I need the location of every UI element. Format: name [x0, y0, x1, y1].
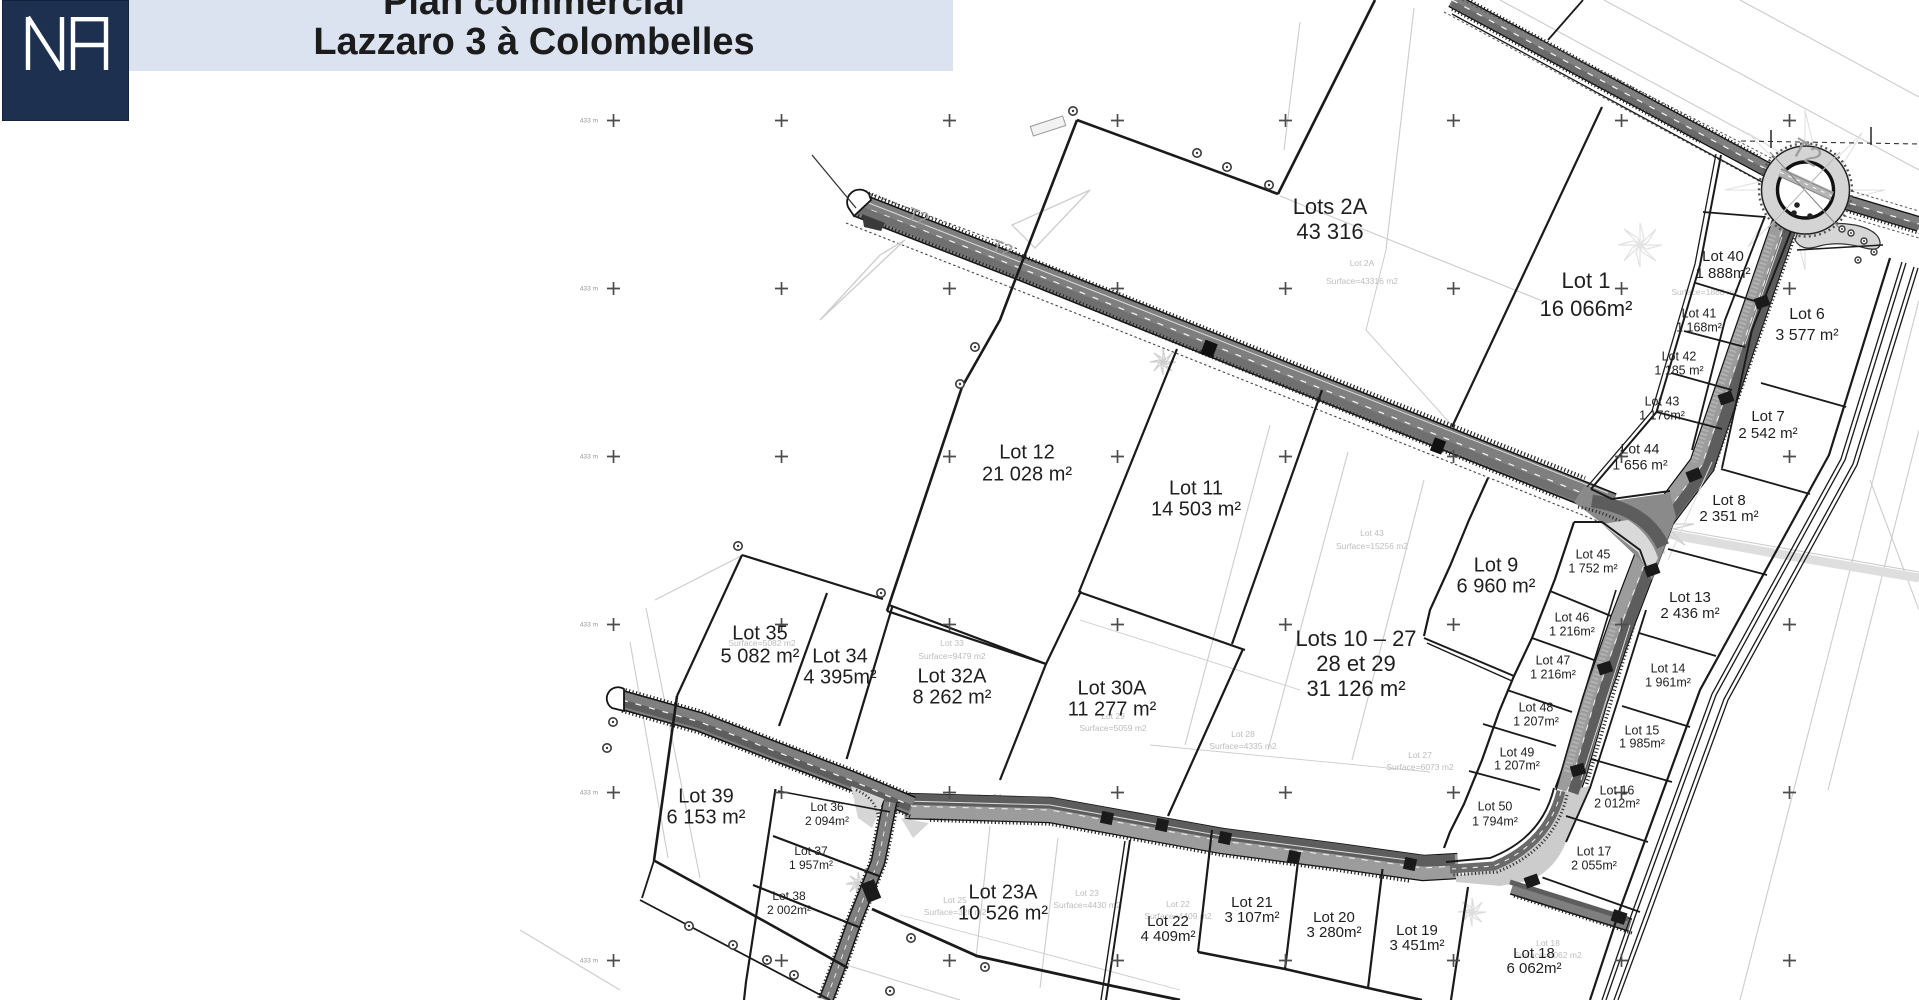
svg-text:Lot 2A: Lot 2A: [1350, 258, 1375, 268]
svg-text:1 216m²: 1 216m²: [1530, 667, 1576, 681]
svg-text:43 316: 43 316: [1296, 219, 1363, 244]
svg-text:1 985m²: 1 985m²: [1619, 736, 1665, 750]
svg-text:2 436 m²: 2 436 m²: [1660, 605, 1719, 622]
svg-text:21 028 m²: 21 028 m²: [982, 463, 1072, 485]
svg-text:433 m: 433 m: [580, 118, 598, 125]
svg-text:Lot 40: Lot 40: [1702, 248, 1744, 265]
svg-text:4 395m²: 4 395m²: [803, 666, 877, 688]
svg-text:Surface=5059 m2: Surface=5059 m2: [1079, 723, 1147, 733]
svg-text:6 960 m²: 6 960 m²: [1457, 575, 1536, 597]
svg-text:1 961m²: 1 961m²: [1645, 675, 1691, 689]
svg-text:2 094m²: 2 094m²: [805, 814, 849, 828]
svg-text:Lot 7: Lot 7: [1751, 408, 1784, 425]
svg-text:11 277 m²: 11 277 m²: [1068, 698, 1157, 720]
svg-text:14 503 m²: 14 503 m²: [1151, 498, 1241, 520]
svg-text:Lot 49: Lot 49: [1500, 745, 1535, 759]
svg-text:2 055m²: 2 055m²: [1571, 858, 1617, 872]
svg-text:Lot 11: Lot 11: [1169, 477, 1223, 499]
svg-text:8 262 m²: 8 262 m²: [913, 686, 992, 708]
svg-text:Lot 33: Lot 33: [940, 638, 964, 648]
svg-text:10 526 m²: 10 526 m²: [958, 902, 1048, 924]
svg-text:Lot 35: Lot 35: [732, 622, 788, 644]
svg-text:Lot 15: Lot 15: [1625, 723, 1660, 737]
svg-text:2 542 m²: 2 542 m²: [1738, 425, 1797, 442]
svg-text:Surface=15256 m2: Surface=15256 m2: [1336, 541, 1408, 551]
svg-text:Lot 9: Lot 9: [1474, 554, 1518, 576]
svg-text:Lot 30A: Lot 30A: [1078, 677, 1148, 699]
svg-text:1 207m²: 1 207m²: [1494, 758, 1540, 772]
svg-text:1 888m²: 1 888m²: [1695, 265, 1750, 282]
svg-text:Surface=4430 m2: Surface=4430 m2: [1053, 900, 1121, 910]
svg-text:Lot 32A: Lot 32A: [918, 665, 988, 687]
svg-text:1 957m²: 1 957m²: [789, 858, 833, 872]
svg-text:Lot 39: Lot 39: [678, 785, 734, 807]
svg-text:Lot 16: Lot 16: [1600, 783, 1635, 797]
svg-text:16 066m²: 16 066m²: [1540, 296, 1633, 321]
svg-text:Surface=4335 m2: Surface=4335 m2: [1209, 741, 1277, 751]
svg-text:433 m: 433 m: [580, 790, 598, 797]
svg-text:1 752 m²: 1 752 m²: [1568, 561, 1617, 575]
svg-text:1 168m²: 1 168m²: [1676, 320, 1722, 334]
svg-text:2 351 m²: 2 351 m²: [1699, 508, 1758, 525]
svg-text:Lot 46: Lot 46: [1555, 610, 1590, 624]
svg-text:433 m: 433 m: [580, 286, 598, 293]
svg-text:Lot 12: Lot 12: [999, 441, 1055, 463]
svg-text:Lot 47: Lot 47: [1536, 653, 1571, 667]
svg-text:Lot 50: Lot 50: [1478, 799, 1513, 813]
svg-text:Surface=6073 m2: Surface=6073 m2: [1386, 762, 1454, 772]
svg-text:Lot 38: Lot 38: [772, 889, 806, 903]
svg-text:1 176m²: 1 176m²: [1639, 408, 1685, 422]
svg-text:Lot 42: Lot 42: [1662, 349, 1697, 363]
svg-text:6 062m²: 6 062m²: [1506, 960, 1561, 977]
svg-text:Lot 1: Lot 1: [1562, 268, 1611, 293]
svg-text:1 656 m²: 1 656 m²: [1612, 457, 1668, 473]
svg-text:1 216m²: 1 216m²: [1549, 624, 1595, 638]
svg-text:Lot 13: Lot 13: [1669, 589, 1711, 606]
svg-text:Lot 44: Lot 44: [1621, 441, 1660, 457]
svg-text:433 m: 433 m: [580, 622, 598, 629]
svg-text:Lot 34: Lot 34: [812, 645, 868, 667]
svg-text:3 577 m²: 3 577 m²: [1775, 327, 1839, 344]
svg-text:Surface=1888 m2: Surface=1888 m2: [1671, 287, 1739, 297]
svg-text:Lot 37: Lot 37: [794, 844, 828, 858]
svg-text:Lot 22: Lot 22: [1166, 899, 1190, 909]
svg-text:Lot 14: Lot 14: [1651, 661, 1686, 675]
svg-text:Lot 36: Lot 36: [810, 800, 844, 814]
svg-text:31 126 m²: 31 126 m²: [1306, 676, 1405, 701]
svg-text:Surface=43316 m2: Surface=43316 m2: [1326, 276, 1398, 286]
svg-text:1 207m²: 1 207m²: [1513, 714, 1559, 728]
svg-text:Lot 43: Lot 43: [1360, 528, 1384, 538]
svg-text:Surface=9479 m2: Surface=9479 m2: [918, 651, 986, 661]
svg-text:Lots 10 – 27: Lots 10 – 27: [1295, 626, 1416, 651]
svg-text:3 280m²: 3 280m²: [1306, 924, 1361, 941]
svg-text:Lot 8: Lot 8: [1712, 492, 1745, 509]
svg-text:Lot 28: Lot 28: [1231, 729, 1255, 739]
svg-text:Lot 45: Lot 45: [1576, 547, 1611, 561]
svg-text:Lot 48: Lot 48: [1519, 700, 1554, 714]
svg-text:3 107m²: 3 107m²: [1224, 909, 1279, 926]
svg-text:2 012m²: 2 012m²: [1594, 796, 1640, 810]
svg-text:1 185 m²: 1 185 m²: [1654, 363, 1703, 377]
svg-text:2 002m²: 2 002m²: [767, 903, 811, 917]
svg-text:Lot 41: Lot 41: [1682, 306, 1717, 320]
svg-text:28 et 29: 28 et 29: [1316, 651, 1396, 676]
svg-text:Lot 23: Lot 23: [1075, 888, 1099, 898]
svg-text:5 082 m²: 5 082 m²: [721, 645, 800, 667]
svg-text:Lot 6: Lot 6: [1789, 306, 1825, 323]
svg-text:4 409m²: 4 409m²: [1140, 928, 1195, 945]
svg-text:Lot 17: Lot 17: [1577, 844, 1612, 858]
svg-text:6 153 m²: 6 153 m²: [667, 806, 746, 828]
svg-text:1 794m²: 1 794m²: [1472, 814, 1518, 828]
svg-text:Lot 43: Lot 43: [1645, 394, 1680, 408]
svg-text:433 m: 433 m: [580, 958, 598, 965]
svg-text:Lots 2A: Lots 2A: [1293, 194, 1368, 219]
svg-text:433 m: 433 m: [580, 454, 598, 461]
svg-text:Lot 23A: Lot 23A: [969, 881, 1039, 903]
svg-text:Lot 27: Lot 27: [1408, 750, 1432, 760]
svg-text:3 451m²: 3 451m²: [1389, 937, 1444, 954]
